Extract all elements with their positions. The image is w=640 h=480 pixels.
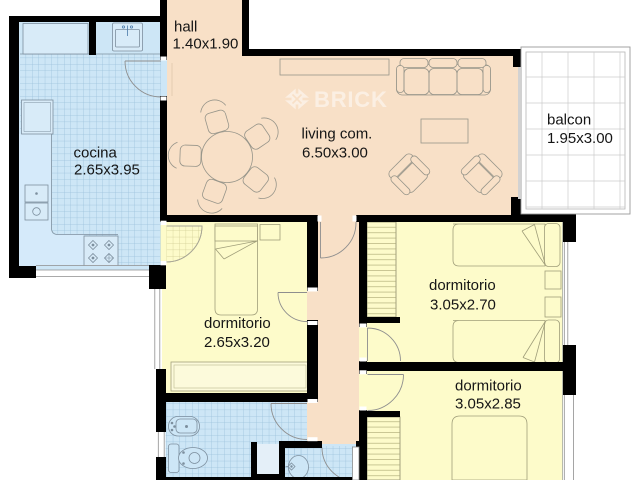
svg-text:cocina: cocina — [74, 145, 118, 162]
svg-text:dormitorio: dormitorio — [429, 277, 496, 294]
svg-text:living com.: living com. — [302, 126, 373, 143]
svg-text:1.40x1.90: 1.40x1.90 — [173, 36, 239, 53]
svg-text:dormitorio: dormitorio — [455, 378, 522, 395]
svg-text:balcon: balcon — [547, 112, 591, 129]
svg-text:2.65x3.20: 2.65x3.20 — [204, 334, 270, 351]
svg-text:dormitorio: dormitorio — [204, 315, 271, 332]
svg-text:3.05x2.70: 3.05x2.70 — [430, 297, 496, 314]
svg-text:3.05x2.85: 3.05x2.85 — [455, 396, 521, 413]
svg-text:1.95x3.00: 1.95x3.00 — [547, 130, 613, 147]
svg-text:2.65x3.95: 2.65x3.95 — [74, 162, 140, 179]
svg-text:hall: hall — [174, 19, 197, 36]
svg-text:BRICK: BRICK — [314, 87, 388, 112]
svg-text:6.50x3.00: 6.50x3.00 — [302, 145, 368, 162]
